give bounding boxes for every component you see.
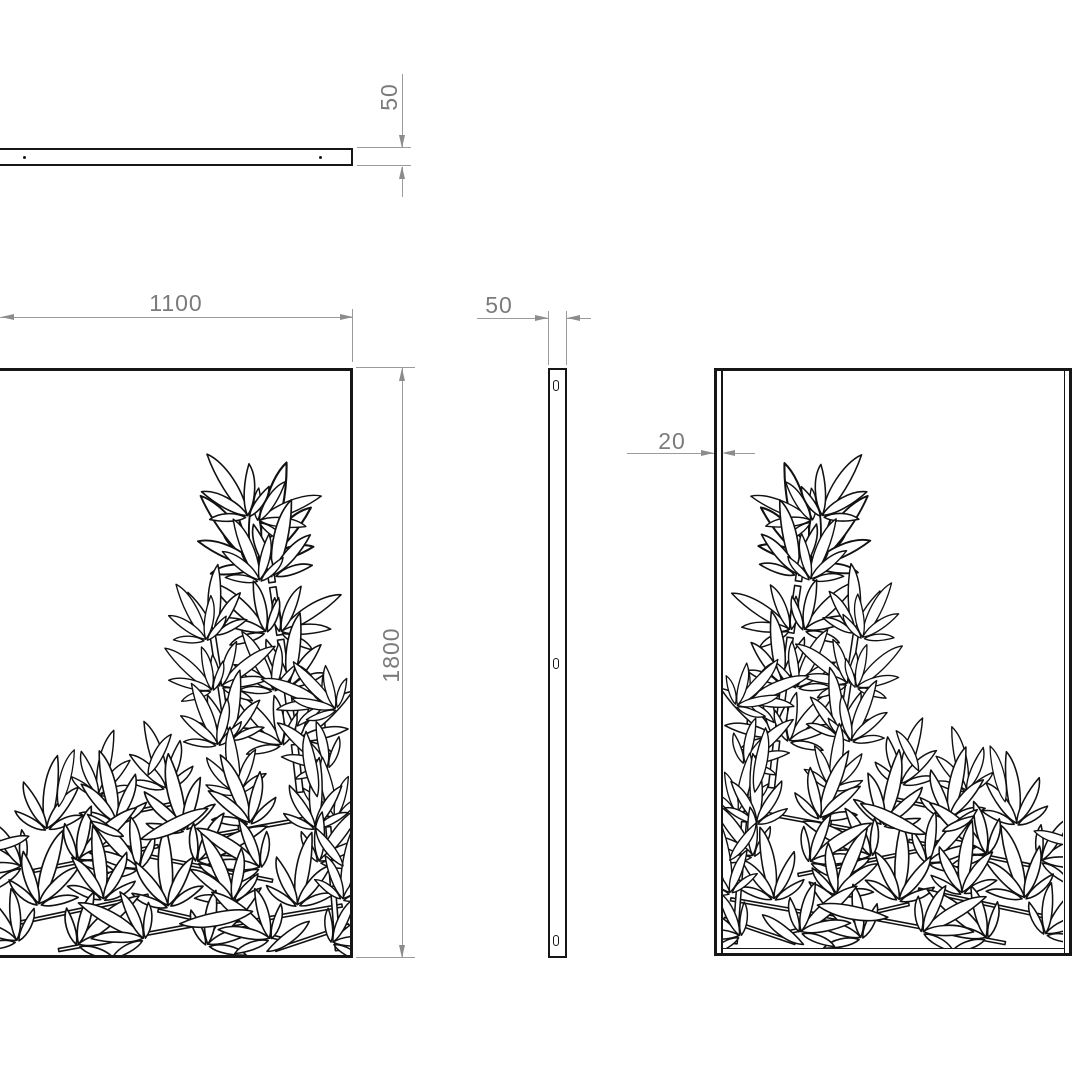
dim-width-line <box>0 317 353 318</box>
dim-topthickness-arrow-up <box>399 166 405 179</box>
dim-width-label: 1100 <box>116 290 236 317</box>
dim-height-ext-top <box>356 367 415 368</box>
dim-topthickness-label: 50 <box>376 77 402 117</box>
side-view-slot-middle <box>553 658 559 669</box>
dim-height-ext-bottom <box>356 957 415 958</box>
dim-flange-arrow-left <box>722 450 735 456</box>
dim-sidewidth-label: 50 <box>469 292 529 319</box>
dim-width-arrow-left <box>1 314 14 320</box>
top-view-hole-left <box>23 156 26 159</box>
side-view-slot-top <box>553 380 559 391</box>
dim-topthickness-arrow-down <box>399 135 405 148</box>
bamboo-pattern-front <box>0 371 350 955</box>
dim-sidewidth-arrow-right <box>535 315 548 321</box>
back-view-flange-right <box>1064 371 1066 953</box>
dim-flange-label: 20 <box>644 428 700 455</box>
dim-sidewidth-ext-left <box>548 311 549 365</box>
dim-height-arrow-down <box>399 945 405 958</box>
bamboo-pattern-back <box>723 373 1063 948</box>
top-view-hole-right <box>319 156 322 159</box>
side-view-slot-bottom <box>553 935 559 946</box>
drawing-canvas: 50 1100 1800 50 20 <box>0 0 1080 1080</box>
front-view-panel <box>0 368 353 958</box>
dim-height-label: 1800 <box>378 620 404 690</box>
dim-flange-arrow-right <box>701 450 714 456</box>
dim-height-arrow-up <box>399 368 405 381</box>
dim-flange-tail <box>735 453 755 454</box>
top-view-panel <box>0 148 353 166</box>
back-view-panel <box>714 368 1072 956</box>
dim-sidewidth-arrow-left <box>567 315 580 321</box>
dim-width-ext <box>352 309 353 362</box>
